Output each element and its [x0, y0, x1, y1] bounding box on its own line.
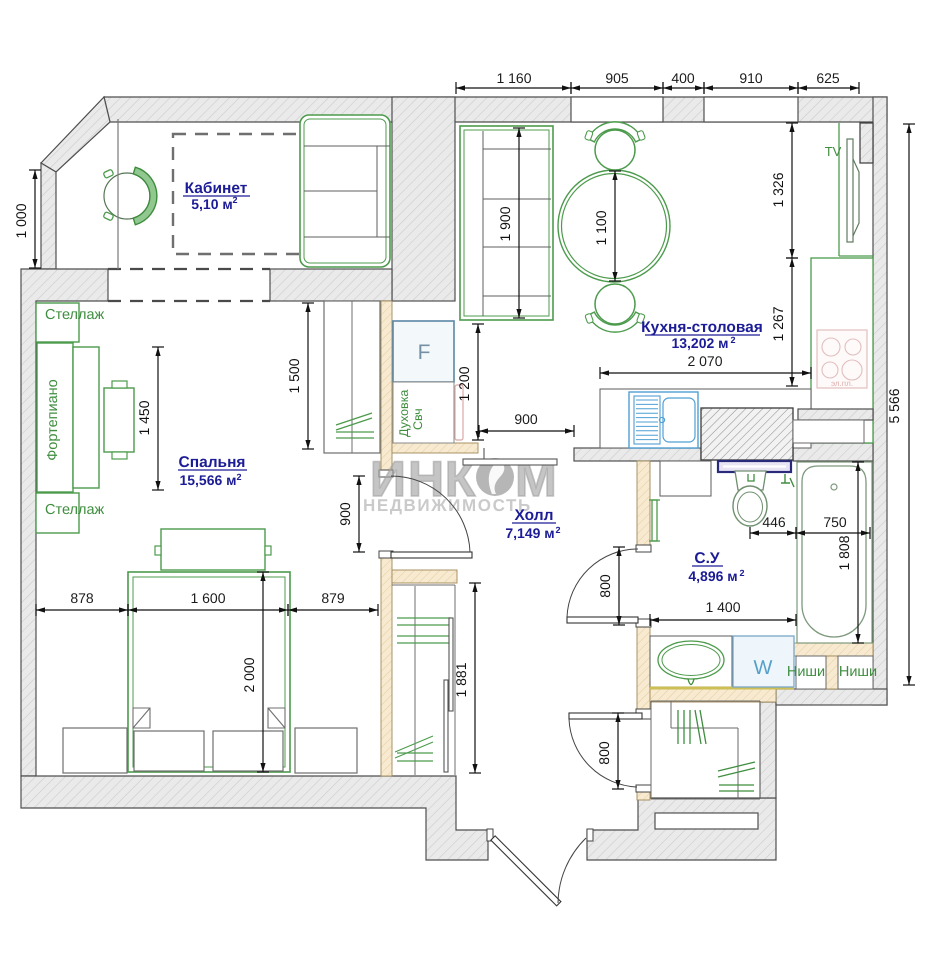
- svg-text:С.У: С.У: [694, 550, 720, 567]
- svg-text:Стеллаж: Стеллаж: [45, 307, 105, 323]
- svg-text:1 267: 1 267: [770, 306, 786, 341]
- svg-text:1 160: 1 160: [496, 70, 531, 86]
- svg-text:Ниши: Ниши: [787, 664, 825, 680]
- svg-text:878: 878: [70, 590, 94, 606]
- svg-text:F: F: [418, 341, 431, 364]
- svg-text:879: 879: [321, 590, 345, 606]
- svg-text:Духовка: Духовка: [397, 390, 411, 437]
- svg-text:2: 2: [232, 195, 237, 205]
- svg-text:400: 400: [671, 70, 695, 86]
- svg-text:900: 900: [337, 502, 353, 526]
- svg-text:Свч: Свч: [411, 408, 425, 430]
- svg-text:1 500: 1 500: [286, 358, 302, 393]
- svg-text:7,149 м: 7,149 м: [505, 525, 554, 541]
- svg-text:2 000: 2 000: [241, 657, 257, 692]
- svg-text:1 000: 1 000: [13, 203, 29, 238]
- svg-text:НЕДВИЖИМОСТЬ: НЕДВИЖИМОСТЬ: [363, 496, 532, 515]
- svg-text:625: 625: [816, 70, 840, 86]
- svg-text:1 808: 1 808: [836, 535, 852, 570]
- svg-text:1 326: 1 326: [770, 172, 786, 207]
- svg-text:Кухня-столовая: Кухня-столовая: [641, 319, 763, 336]
- svg-text:905: 905: [605, 70, 629, 86]
- svg-text:2: 2: [236, 472, 241, 482]
- svg-text:750: 750: [823, 514, 847, 530]
- svg-text:5 566: 5 566: [886, 388, 902, 423]
- svg-text:эл.пл.: эл.пл.: [831, 379, 853, 388]
- svg-text:2 070: 2 070: [687, 353, 722, 369]
- svg-text:Стеллаж: Стеллаж: [45, 502, 105, 518]
- svg-text:2: 2: [739, 568, 744, 578]
- svg-text:1 600: 1 600: [190, 590, 225, 606]
- svg-text:1 400: 1 400: [705, 599, 740, 615]
- svg-text:13,202 м: 13,202 м: [671, 335, 728, 351]
- svg-text:1 881: 1 881: [453, 662, 469, 697]
- svg-text:Фортепиано: Фортепиано: [45, 379, 61, 460]
- svg-text:15,566 м: 15,566 м: [179, 472, 236, 488]
- svg-text:2: 2: [730, 335, 735, 345]
- svg-text:1 200: 1 200: [456, 366, 472, 401]
- svg-text:800: 800: [596, 741, 612, 765]
- svg-text:446: 446: [762, 514, 786, 530]
- svg-text:Ниши: Ниши: [839, 664, 877, 680]
- svg-text:1 100: 1 100: [593, 210, 609, 245]
- svg-text:2: 2: [555, 525, 560, 535]
- svg-text:910: 910: [739, 70, 763, 86]
- svg-text:W: W: [754, 657, 773, 679]
- svg-text:5,10 м: 5,10 м: [191, 196, 233, 212]
- svg-text:Кабинет: Кабинет: [185, 180, 248, 197]
- svg-text:Спальня: Спальня: [179, 454, 246, 471]
- svg-text:Холл: Холл: [515, 507, 554, 524]
- svg-text:1 450: 1 450: [136, 400, 152, 435]
- svg-text:1 900: 1 900: [497, 206, 513, 241]
- svg-text:4,896 м: 4,896 м: [688, 568, 737, 584]
- svg-text:TV: TV: [825, 144, 842, 159]
- svg-text:800: 800: [597, 574, 613, 598]
- svg-text:900: 900: [514, 411, 538, 427]
